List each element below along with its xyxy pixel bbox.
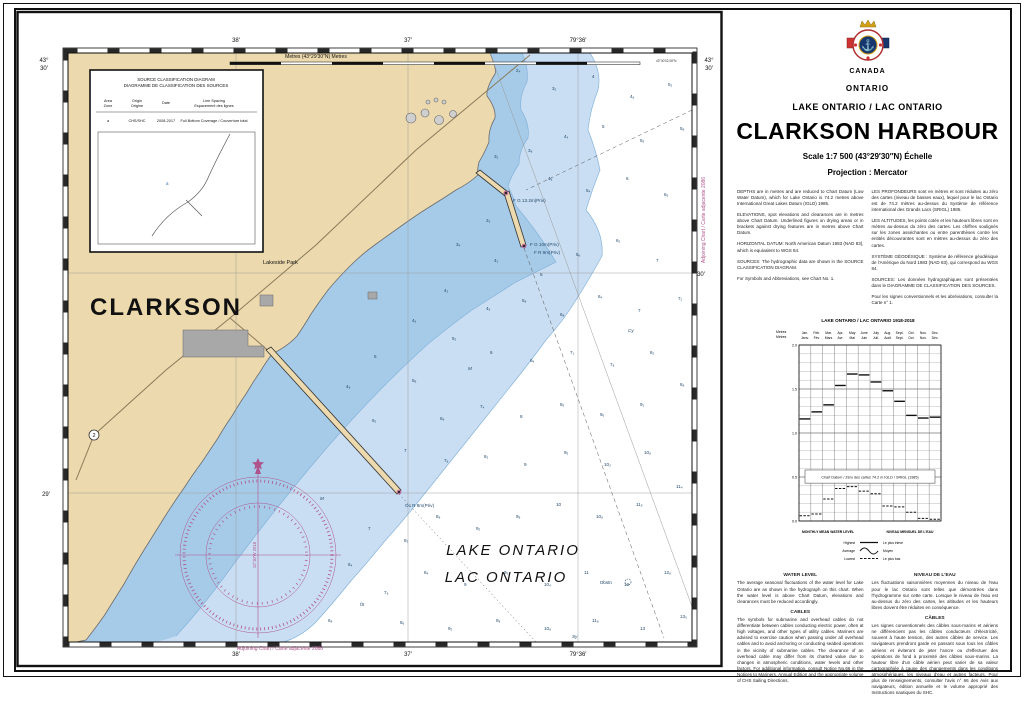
light-characteristic: F R 9m(Priv) (534, 250, 560, 255)
month-label-en: June (860, 331, 867, 335)
sounding: 7 (638, 308, 641, 313)
lat-label-left-deg: 43° (39, 58, 49, 64)
scd-col-date: Date (162, 101, 170, 105)
month-label-en: Dec. (931, 331, 938, 335)
sounding: 3₈ (528, 148, 533, 153)
lat-label-right-deg: 43° (704, 58, 714, 64)
sounding: 4₂ (494, 258, 499, 263)
bottom-notes: WATER LEVEL The average seasonal fluctua… (727, 571, 1008, 701)
month-label-en: May (849, 331, 856, 335)
y-tick-label: 0.0 (792, 519, 797, 523)
sounding: 5 (540, 272, 543, 277)
sounding: 4₂ (444, 288, 449, 293)
month-label-fr: Mars (824, 336, 832, 340)
month-label-en: Nov. (919, 331, 926, 335)
water-level-body-fr: Les fluctuations saisonnières moyennes d… (872, 580, 999, 610)
sounding: 7₁ (570, 350, 575, 355)
lon-label-top-38: 38′ (232, 38, 241, 44)
sounding: 4₈ (548, 176, 553, 181)
sounding: 4₆ (412, 318, 417, 323)
note-sources-fr: SOURCES: Les données hydrographiques son… (872, 277, 999, 289)
lac-ontario-label: LAC ONTARIO (445, 569, 568, 586)
legend-highest-en: Highest (843, 541, 855, 545)
y-tick-label: 1.5 (792, 387, 797, 391)
sounding: 10₂ (604, 462, 611, 467)
sounding: 6 (490, 350, 493, 355)
water-level-hydrograph: LAKE ONTARIO / LAC ONTARIO 1918-2018 Met… (773, 315, 963, 565)
y-axis-unit-en: Metres (776, 330, 787, 334)
chart-map-area: 2 (16, 10, 724, 668)
note-sources-en: SOURCES: The hydrographic data are shown… (737, 259, 864, 271)
sounding: 6₂ (372, 418, 377, 423)
waterbody-label: LAKE ONTARIO / LAC ONTARIO (727, 102, 1008, 112)
note-elevations-fr: LES ALTITUDES, les points cotés et les h… (872, 218, 999, 248)
scd-col-spacing-en: Line Spacing (203, 99, 225, 103)
water-level-heading-fr: NIVEAU DE L'EAU (872, 573, 999, 579)
sounding: 8 (520, 414, 523, 419)
lon-label-top-37: 37′ (404, 38, 413, 44)
hydrograph-title: LAKE ONTARIO / LAC ONTARIO 1918-2018 (821, 318, 915, 323)
scd-col-origin-fr: Origine (131, 104, 143, 108)
scd-col-area-fr: Zone (104, 104, 113, 108)
light-characteristic: Oc R 8m(Priv) (405, 503, 435, 508)
sounding: 7₈ (444, 458, 449, 463)
sounding: 3₂ (494, 154, 499, 159)
sounding: 9₆ (600, 412, 605, 417)
cables-body-en: The symbols for submarine and overhead c… (737, 617, 864, 684)
note-symbols-en: For Symbols and Abbreviations, see Chart… (737, 276, 864, 282)
sounding: 12₈ (664, 570, 671, 575)
month-label-fr: Juil. (872, 336, 878, 340)
lon-label-bottom-38: 38′ (232, 652, 241, 658)
nautical-chart: 2 (16, 10, 724, 668)
sounding: 9₁ (640, 402, 645, 407)
month-label-en: Mar. (825, 331, 832, 335)
month-label-en: Aug. (884, 331, 891, 335)
month-label-en: Feb. (813, 331, 820, 335)
note-depths-en: DEPTHS are in metres and are reduced to … (737, 189, 864, 207)
month-label-fr: Avr. (837, 336, 843, 340)
scale-bar-label: Metres (43°29′30″N) Metres (285, 54, 347, 60)
sounding: 13 (640, 626, 646, 631)
sounding: 5₆ (576, 252, 581, 257)
sounding: 4₈ (346, 384, 351, 389)
sounding: 8₂ (650, 350, 655, 355)
legend-lowest-en: Lowest (844, 557, 855, 561)
seabed-type: Cy (628, 328, 634, 333)
anchor-icon: ⚓ (861, 39, 875, 52)
projection-label: Projection : Mercator (727, 168, 1008, 177)
sounding: 4 (592, 74, 595, 79)
sounding: 8₈ (436, 514, 441, 519)
month-label-fr: Oct. (908, 336, 914, 340)
sounding: 4₆ (630, 94, 635, 99)
notes-english: DEPTHS are in metres and are reduced to … (737, 189, 864, 311)
sounding: 6 (626, 176, 629, 181)
sounding: 4₄ (564, 134, 569, 139)
lat-label-right-30: 30′ (697, 272, 706, 278)
sounding: 6₄ (598, 294, 603, 299)
lake-ontario-label: LAKE ONTARIO (446, 542, 580, 559)
sounding: 5₄ (586, 188, 591, 193)
water-level-heading-en: WATER LEVEL (737, 573, 864, 579)
month-label-fr: Nov. (919, 336, 926, 340)
sounding: 6₂ (616, 238, 621, 243)
chs-crest: ⚓ (845, 18, 891, 66)
month-label-en: Apr. (837, 331, 843, 335)
scd-row-date: 2008-2017 (157, 119, 175, 123)
chart-title: CLARKSON HARBOUR (727, 118, 1008, 145)
sounding: 7₈ (610, 362, 615, 367)
y-tick-label: 2.0 (792, 343, 797, 347)
scd-title-2: DIAGRAMME DE CLASSIFICATION DES SOURCES (124, 83, 229, 88)
month-label-en: Jan. (801, 331, 807, 335)
sounding: 7 (656, 258, 659, 263)
month-label-en: Oct. (908, 331, 914, 335)
sounding: 9₅ (564, 450, 569, 455)
sounding: 7 (404, 448, 407, 453)
hydrograph-legend: Highest Le plus élevé Average Moyen Lowe… (842, 541, 903, 561)
sounding: 3₄ (456, 242, 461, 247)
sounding: 5₅ (640, 138, 645, 143)
bottom-notes-french: NIVEAU DE L'EAU Les fluctuations saisonn… (872, 571, 999, 701)
sounding: 11₄ (676, 484, 683, 489)
sounding: 7₈ (384, 590, 389, 595)
y-tick-label: 0.5 (792, 475, 797, 479)
sounding: 5 (374, 354, 377, 359)
note-symbols-fr: Pour les signes conventionnels et les ab… (872, 294, 999, 306)
seabed-type: Sy (572, 634, 578, 639)
sounding: 5₈ (680, 126, 685, 131)
scd-col-spacing-fr: Espacement des lignes (194, 104, 233, 108)
y-tick-label: 1.0 (792, 431, 797, 435)
lon-label-top-36: 79°36′ (570, 38, 588, 44)
sounding: 7₂ (678, 296, 683, 301)
seabed-type: M (468, 366, 472, 371)
note-datum-fr: SYSTÈME GÉODÉSIQUE : Système de référenc… (872, 254, 999, 272)
month-label-fr: Sept. (895, 336, 903, 340)
hydrograph-footer-fr: NIVEAU MENSUEL DE L'EAU (886, 530, 933, 534)
legend-average-fr: Moyen (883, 549, 893, 553)
sounding: 6₈ (328, 618, 333, 623)
sounding: 11₈ (592, 618, 599, 623)
legend-lowest-fr: Le plus bas (883, 557, 901, 561)
obstn-label: Obstn (600, 580, 613, 585)
scd-row-origin: CHS/SHC (128, 119, 145, 123)
legend-average-en: Average (842, 549, 855, 553)
sounding: 6₈ (560, 312, 565, 317)
adjoining-chart-bottom: Adjoining Chart / Carte adjacente 2086 (237, 646, 323, 652)
sounding: 12 (624, 582, 630, 587)
hydrograph-plot: Jan.Janv.Feb.Fév.Mar.MarsApr.Avr.MayMaiJ… (792, 331, 941, 523)
lat-label-right-min: 30′ (705, 66, 714, 72)
notes-french: LES PROFONDEURS sont en mètres et sont r… (872, 189, 999, 311)
seabed-type: M (320, 496, 324, 501)
month-label-fr: Août (884, 336, 891, 340)
sounding: 2₉ (486, 218, 491, 223)
sounding: 9₂ (476, 526, 481, 531)
sounding: 5 (602, 124, 605, 129)
country-label: CANADA (727, 68, 1008, 75)
sounding: 7 (368, 526, 371, 531)
month-label-fr: Janv. (800, 336, 808, 340)
sounding: 5₈ (522, 298, 527, 303)
scd-row-spacing: Full Bottom Coverage / Couverture total (181, 119, 248, 123)
sounding: 6₄ (348, 562, 353, 567)
title-panel: ⚓ CANADA ONTARIO LAKE ONTARIO / LAC ONTA… (727, 14, 1008, 666)
sounding: 3₂ (552, 86, 557, 91)
sounding: 2₄ (516, 68, 521, 73)
sounding: 5₂ (668, 82, 673, 87)
y-axis-unit-fr: Mètres (776, 335, 787, 339)
source-classification-diagram: SOURCE CLASSIFICATION DIAGRAM DIAGRAMME … (90, 70, 263, 252)
sounding: 11 (584, 570, 589, 575)
note-depths-fr: LES PROFONDEURS sont en mètres et sont r… (872, 189, 999, 213)
lon-label-bottom-37: 37′ (404, 652, 413, 658)
sounding: 8₈ (680, 382, 685, 387)
sounding: 13₅ (680, 614, 687, 619)
sounding: 9₈ (516, 514, 521, 519)
sounding: 7₄ (480, 404, 485, 409)
month-label-fr: Fév. (813, 336, 819, 340)
scd-col-area-en: Area (104, 99, 113, 103)
lat-label-left-29: 29′ (42, 492, 51, 498)
water-level-body-en: The average seasonal fluctuations of the… (737, 580, 864, 604)
clarkson-label: CLARKSON (90, 294, 242, 321)
bottom-notes-english: WATER LEVEL The average seasonal fluctua… (737, 571, 864, 701)
sounding: 6₅ (664, 192, 669, 197)
scale-label: Scale 1:7 500 (43°29′30″N) Échelle (727, 152, 1008, 161)
sounding: 10 (556, 502, 562, 507)
chart-sheet: 2 (0, 0, 1024, 680)
legend-highest-fr: Le plus élevé (883, 541, 903, 545)
sounding: 6₈ (440, 416, 445, 421)
cables-body-fr: Les signes conventionnels des câbles sou… (872, 623, 999, 696)
adjoining-chart-right: Adjoining Chart / Carte adjacente 2086 (701, 177, 707, 263)
sounding: 8₂ (404, 538, 409, 543)
sounding: 9₈ (496, 618, 501, 623)
sounding: 4₉ (486, 306, 491, 311)
scd-col-origin-en: Origin (132, 99, 142, 103)
month-label-fr: Juin (860, 336, 866, 340)
light-characteristic: F G 10m(Priv) (530, 242, 559, 247)
corner-coordinate-note: 43°30′02.08″N (656, 59, 677, 63)
sounding: 6₆ (530, 358, 535, 363)
crown-icon (860, 20, 876, 27)
sounding: 9 (524, 462, 527, 467)
highway-badge: 2 (89, 430, 99, 440)
month-label-fr: Déc. (931, 336, 938, 340)
highway-number: 2 (92, 433, 95, 439)
scd-minimap (98, 132, 255, 244)
cables-heading-fr: CÂBLES (872, 616, 999, 622)
lat-label-left-min: 30′ (40, 66, 49, 72)
sounding: 10₈ (544, 626, 551, 631)
month-label-en: July (872, 331, 878, 335)
sounding: 5₂ (452, 336, 457, 341)
month-label-en: Sept. (895, 331, 903, 335)
sounding: 8₅ (560, 402, 565, 407)
sounding: 8₄ (424, 570, 429, 575)
lon-label-bottom-36: 79°36′ (570, 652, 588, 658)
hydrograph-footer-en: MONTHLY MEAN WATER LEVEL (801, 530, 853, 534)
sounding: 8₆ (400, 620, 405, 625)
note-elevations-en: ELEVATIONS, spot elevations and clearanc… (737, 212, 864, 236)
sounding: 9₂ (448, 626, 453, 631)
chart-notes: DEPTHS are in metres and are reduced to … (727, 189, 1008, 311)
light-characteristic: F G 13.2m(Priv) (513, 198, 546, 203)
cables-heading-en: CABLES (737, 610, 864, 616)
legend-average-symbol (860, 548, 878, 554)
note-datum-en: HORIZONTAL DATUM: North American Datum 1… (737, 241, 864, 253)
scd-title-1: SOURCE CLASSIFICATION DIAGRAM (137, 77, 215, 82)
magnetic-variation: 10°30′W 2018 (252, 541, 257, 568)
sounding: 11₅ (636, 502, 643, 507)
sounding: 5₈ (412, 378, 417, 383)
sounding: 10₈ (596, 514, 603, 519)
lakeside-park-label: Lakeside Park (263, 260, 298, 266)
province-label: ONTARIO (727, 84, 1008, 93)
sounding: 10₈ (644, 450, 651, 455)
sounding: 8₂ (484, 454, 489, 459)
month-label-fr: Mai (849, 336, 855, 340)
datum-label: Chart Datum / Zéro des cartes 74.2 m IGL… (821, 475, 918, 479)
